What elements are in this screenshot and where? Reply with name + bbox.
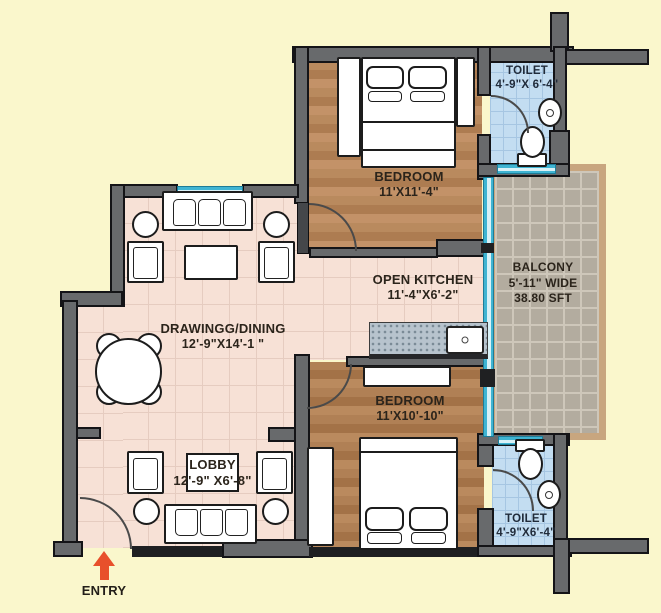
- nightstand: [337, 57, 361, 157]
- sofa-cushion: [223, 199, 246, 226]
- armchair-cushion: [262, 458, 287, 490]
- wall-segment: [558, 49, 649, 65]
- floor-plan: BEDROOM 11'X11'-4" TOILET 4'-9"X 6'-4" B…: [0, 0, 661, 613]
- room-name: DRAWINGG/DINING: [147, 321, 299, 337]
- washbasin: [538, 98, 562, 127]
- room-dims: 11'X10'-10": [344, 409, 476, 424]
- kitchen-sink: [446, 326, 484, 354]
- wall-segment: [477, 46, 491, 96]
- nightstand: [456, 57, 475, 127]
- toilet-top-label: TOILET 4'-9"X 6'-4": [491, 64, 563, 92]
- room-dims: 4'-9"X6'-4": [490, 526, 562, 540]
- balcony-sliding-window: [483, 177, 494, 437]
- lobby-label-box: LOBBY 12'-9" X6'-8": [186, 453, 239, 492]
- kitchen-label: OPEN KITCHEN 11'-4"X6'-2": [350, 272, 496, 303]
- room-dims: 4'-9"X 6'-4": [491, 78, 563, 92]
- bedroom-bottom-label: BEDROOM 11'X10'-10": [344, 393, 476, 424]
- pillow: [409, 507, 448, 531]
- sofa-cushion: [198, 199, 221, 226]
- wall-segment: [132, 546, 226, 557]
- side-table: [132, 211, 159, 238]
- room-name: LOBBY: [189, 457, 236, 473]
- side-table: [263, 211, 290, 238]
- wall-segment: [268, 427, 296, 442]
- pillow: [366, 66, 404, 89]
- side-table: [133, 498, 160, 525]
- window-mullion: [480, 369, 495, 387]
- armchair-cushion: [133, 247, 158, 279]
- entry-arrow-icon: [100, 564, 109, 580]
- sofa-cushion: [225, 509, 248, 536]
- wall-segment: [294, 46, 309, 204]
- bedroom-top-label: BEDROOM 11'X11'-4": [343, 169, 475, 200]
- door-leaf: [297, 202, 309, 254]
- room-name: BEDROOM: [343, 169, 475, 185]
- pillow: [365, 507, 404, 531]
- wardrobe: [363, 366, 451, 387]
- drawing-dining-label: DRAWINGG/DINING 12'-9"X14'-1 ": [147, 321, 299, 352]
- room-name: BALCONY: [491, 260, 595, 276]
- room-dims: 12'-9"X14'-1 ": [147, 337, 299, 352]
- room-name: TOILET: [491, 64, 563, 78]
- room-dims: 12'-9" X6'-8": [173, 473, 251, 489]
- wall-segment: [53, 541, 83, 557]
- blanket-line: [363, 149, 454, 151]
- side-table: [262, 498, 289, 525]
- room-name: TOILET: [490, 512, 562, 526]
- balcony-label: BALCONY 5'-11" WIDE 38.80 SFT: [491, 260, 595, 307]
- wall-segment: [76, 427, 101, 439]
- pillow: [367, 532, 402, 544]
- wall-segment: [110, 184, 125, 307]
- pillow: [411, 532, 446, 544]
- pillow: [408, 66, 447, 89]
- sofa-cushion: [173, 199, 196, 226]
- room-dims: 11'X11'-4": [343, 185, 475, 200]
- room-name: BEDROOM: [344, 393, 476, 409]
- dresser: [307, 447, 334, 546]
- armchair-cushion: [133, 458, 158, 490]
- room-dims: 11'-4"X6'-2": [350, 288, 496, 303]
- wc-bowl: [518, 448, 543, 480]
- pillow: [368, 91, 402, 102]
- pillow: [410, 91, 445, 102]
- entry-label: ENTRY: [74, 583, 134, 599]
- window-mullion: [481, 243, 494, 253]
- toilet-bottom-label: TOILET 4'-9"X6'-4": [490, 512, 562, 540]
- room-name: OPEN KITCHEN: [350, 272, 496, 288]
- washbasin: [537, 480, 561, 509]
- blanket-line: [363, 121, 454, 123]
- armchair-cushion: [264, 247, 289, 279]
- wall-segment: [553, 538, 570, 594]
- balcony-area: 38.80 SFT: [491, 291, 595, 307]
- coffee-table: [184, 245, 238, 280]
- blanket-line: [361, 451, 456, 453]
- sofa-cushion: [175, 509, 198, 536]
- sofa-cushion: [200, 509, 223, 536]
- wall-segment: [62, 300, 78, 550]
- balcony-width: 5'-11" WIDE: [491, 276, 595, 292]
